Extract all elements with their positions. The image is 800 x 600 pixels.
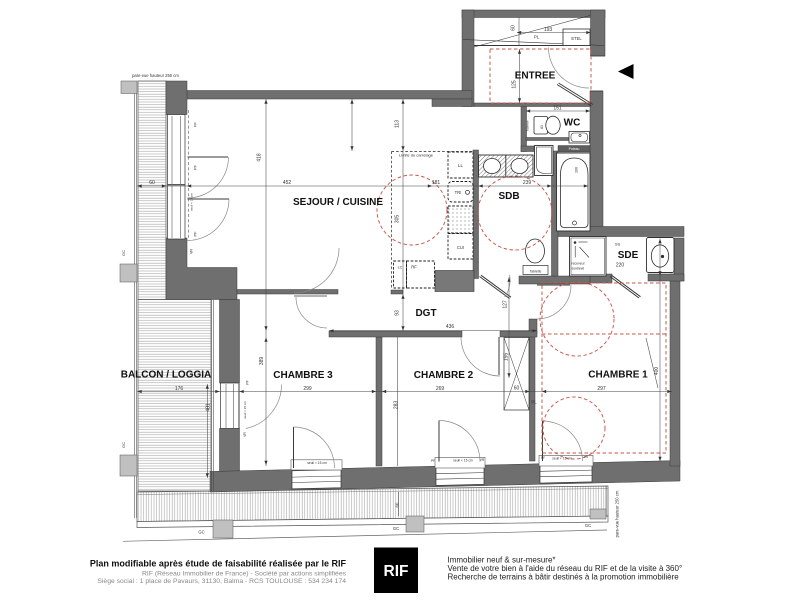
svg-text:VR: VR <box>243 432 247 437</box>
svg-text:PF: PF <box>246 380 250 384</box>
svg-text:Recherche de terrains à bâtir: Recherche de terrains à bâtir destinés à… <box>448 573 680 582</box>
svg-text:181: 181 <box>432 180 441 186</box>
svg-text:PL: PL <box>534 35 540 40</box>
svg-text:pare-vue hauteur 250 cm: pare-vue hauteur 250 cm <box>615 490 620 537</box>
svg-text:113: 113 <box>395 120 401 128</box>
svg-text:ENTREE: ENTREE <box>515 71 556 82</box>
svg-text:seuil < 15 cm: seuil < 15 cm <box>453 459 473 463</box>
svg-text:pare-vue hauteur 250 cm: pare-vue hauteur 250 cm <box>132 73 179 78</box>
svg-text:SDB: SDB <box>498 191 519 202</box>
svg-text:PF: PF <box>194 231 198 237</box>
svg-text:220: 220 <box>616 263 625 269</box>
svg-text:Tablette: Tablette <box>530 269 542 273</box>
svg-text:CHAMBRE 1: CHAMBRE 1 <box>588 370 648 381</box>
svg-text:BALCON / LOGGIA: BALCON / LOGGIA <box>121 370 212 381</box>
svg-text:436: 436 <box>446 324 455 330</box>
svg-text:SDE: SDE <box>618 250 639 261</box>
svg-text:297: 297 <box>597 386 606 392</box>
svg-text:WC: WC <box>564 118 581 129</box>
svg-text:receveur: receveur <box>572 262 586 266</box>
svg-text:Plan modifiable après étude de: Plan modifiable après étude de faisabili… <box>90 559 347 569</box>
svg-text:60: 60 <box>395 502 400 507</box>
svg-text:VR: VR <box>584 455 589 459</box>
svg-text:TRI: TRI <box>455 190 462 195</box>
svg-text:Limite du carrelage: Limite du carrelage <box>399 153 434 158</box>
svg-text:166: 166 <box>575 167 579 173</box>
svg-text:305: 305 <box>395 215 401 224</box>
svg-text:seuil < 15 cm: seuil < 15 cm <box>190 193 194 211</box>
svg-text:RIF: RIF <box>384 563 409 580</box>
svg-text:269: 269 <box>436 386 445 392</box>
svg-text:481: 481 <box>206 403 212 412</box>
svg-text:CUI: CUI <box>457 245 464 250</box>
svg-text:GC: GC <box>198 530 204 535</box>
svg-text:151: 151 <box>553 106 562 112</box>
svg-text:PF: PF <box>194 164 198 170</box>
svg-text:seuil < 15 cm: seuil < 15 cm <box>552 457 572 461</box>
svg-text:PL: PL <box>531 400 537 405</box>
svg-text:SS: SS <box>615 242 621 247</box>
svg-text:CHAMBRE 3: CHAMBRE 3 <box>273 370 333 381</box>
svg-text:418: 418 <box>257 153 263 162</box>
svg-text:VR: VR <box>190 249 194 255</box>
svg-text:FF: FF <box>194 122 198 127</box>
svg-text:PF: PF <box>431 459 435 463</box>
svg-text:GC: GC <box>585 523 591 528</box>
svg-text:299: 299 <box>303 386 312 392</box>
svg-text:GC: GC <box>121 250 126 256</box>
svg-text:LC: LC <box>398 266 403 270</box>
svg-text:389: 389 <box>259 357 265 366</box>
svg-text:400: 400 <box>654 367 660 376</box>
svg-text:60: 60 <box>514 386 520 392</box>
svg-text:RIF (Réseau Immobilier de Fran: RIF (Réseau Immobilier de France) - Soci… <box>142 571 347 578</box>
svg-text:81: 81 <box>540 125 544 129</box>
svg-text:127: 127 <box>503 300 509 309</box>
svg-text:CHAMBRE 2: CHAMBRE 2 <box>414 370 474 381</box>
svg-text:155: 155 <box>504 353 510 362</box>
svg-text:239: 239 <box>523 180 532 186</box>
svg-text:DGT: DGT <box>415 308 436 319</box>
svg-text:283: 283 <box>394 401 400 410</box>
svg-text:93: 93 <box>395 310 401 316</box>
svg-text:seuil < 15 cm: seuil < 15 cm <box>243 401 247 419</box>
svg-text:SEJOUR / CUISINE: SEJOUR / CUISINE <box>293 197 383 208</box>
svg-text:PF: PF <box>541 456 545 460</box>
svg-text:Poteau: Poteau <box>569 147 580 151</box>
svg-text:ETEL: ETEL <box>571 36 582 41</box>
svg-text:GC: GC <box>121 442 126 448</box>
svg-text:LL: LL <box>458 163 463 168</box>
svg-text:60: 60 <box>149 180 155 186</box>
svg-text:193: 193 <box>544 27 553 33</box>
svg-text:surélevé: surélevé <box>572 266 585 270</box>
svg-text:seuil < 15 cm: seuil < 15 cm <box>307 461 327 465</box>
svg-text:Siège social : 1 place de Pava: Siège social : 1 place de Pavaurs, 31130… <box>97 578 346 585</box>
svg-text:Tablette: Tablette <box>526 120 530 131</box>
svg-text:452: 452 <box>283 180 292 186</box>
svg-text:176: 176 <box>175 386 184 392</box>
svg-text:VR: VR <box>480 458 485 462</box>
svg-text:60: 60 <box>511 25 517 31</box>
svg-text:RF: RF <box>411 265 417 270</box>
svg-text:GC: GC <box>393 526 399 531</box>
